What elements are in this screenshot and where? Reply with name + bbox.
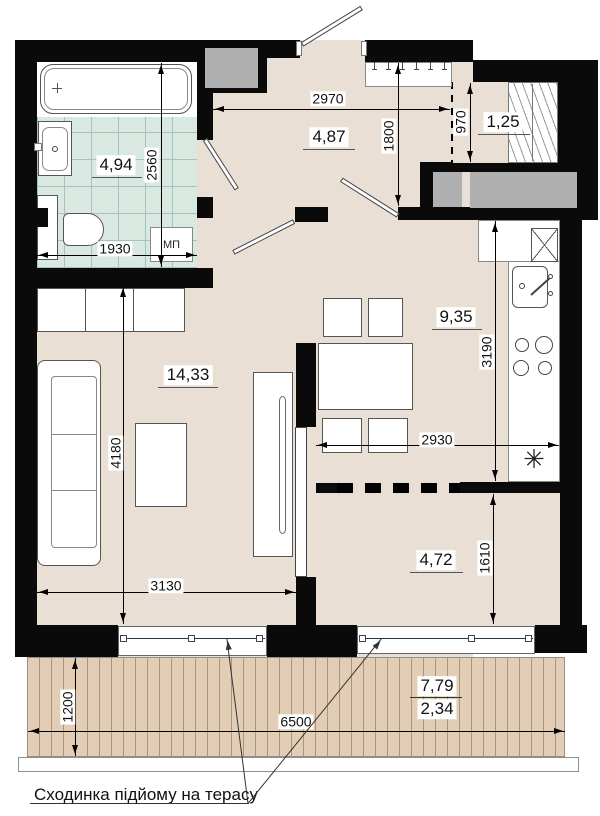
stove-burner (515, 338, 529, 352)
dim-closet-width-line (470, 83, 471, 162)
dining-chair (322, 418, 362, 453)
dim-kitchen-depth-line (495, 221, 496, 481)
wall-zone-right (460, 482, 560, 493)
wall-bottom-left (15, 625, 118, 657)
dim-hall-width-line (213, 109, 450, 110)
shaft-frame-right (258, 40, 267, 93)
dim-kitchen-depth: 3190 (479, 334, 494, 369)
dim-bathroom-depth-line (161, 63, 162, 267)
room-label-kitchen: 9,35 (436, 307, 475, 327)
vent-shaft-small (433, 172, 462, 207)
window-handle (359, 635, 366, 642)
shaft-frame-bottom (205, 88, 267, 93)
kitchen-faucet-knob (548, 274, 553, 279)
tv-stand (253, 372, 293, 557)
toilet-cistern-frame (37, 195, 58, 260)
tv-panel (279, 396, 286, 534)
wall-left (15, 40, 37, 657)
sofa-cushion-line (52, 490, 96, 491)
dim-terrace-width-line (28, 731, 565, 732)
wall-living-divider-upper (296, 343, 316, 427)
wall-bath-south (15, 268, 213, 288)
terrace-step (18, 757, 579, 772)
kitchen-faucet-knob (548, 291, 553, 296)
dining-chair (368, 418, 408, 453)
stove-burner (538, 361, 552, 375)
window-handle (188, 635, 195, 642)
wall-zone-stub-left (316, 483, 337, 493)
toilet-frame-notch (37, 208, 48, 227)
dining-table (318, 343, 413, 410)
kitchen-sink-drain (519, 283, 525, 289)
floor-plan: МП ✳ 2970 1800 970 2560 1930 4180 (0, 0, 600, 816)
washer-place-label: МП (163, 239, 180, 251)
stove-burner (535, 336, 553, 354)
dim-nook-depth: 1610 (477, 540, 492, 575)
dim-nook-depth-line (493, 494, 494, 624)
room-underline-bathroom (92, 177, 142, 178)
wall-living-divider-lower (296, 577, 316, 627)
dim-bathroom-depth: 2560 (144, 147, 159, 182)
dim-kitchen-width: 2930 (419, 432, 454, 447)
washbasin-drain (52, 146, 58, 152)
note-terrace-step: Сходинка підйому на терасу (34, 785, 258, 805)
sofa-seat (51, 376, 97, 548)
kitchen-sink (512, 266, 548, 308)
coat-hook (416, 62, 417, 70)
vent-shaft-large (470, 172, 577, 208)
room-underline-kitchen (432, 329, 482, 330)
window-handle (256, 635, 263, 642)
dim-living-depth: 4180 (108, 435, 123, 470)
bathtub-drain (57, 83, 58, 93)
dining-chair (368, 298, 403, 337)
room-label-living: 14,33 (164, 365, 213, 385)
wall-bottom-pier (267, 625, 357, 657)
wall-top-right (365, 40, 473, 62)
kitchen-vent-x (531, 228, 558, 262)
sliding-panel (295, 427, 307, 577)
window-handle (468, 635, 475, 642)
stove-burner (513, 360, 529, 376)
room-label-terrace-reduced: 2,34 (417, 699, 456, 719)
room-underline-nook (410, 572, 463, 573)
window-nook-glazing (359, 638, 533, 639)
wall-kitchen-east (560, 220, 582, 627)
room-underline-hallway (303, 149, 355, 150)
dim-closet-width: 970 (453, 108, 468, 135)
dim-terrace-depth: 1200 (60, 689, 75, 724)
coat-hook (374, 62, 375, 70)
cabinet-divider (85, 289, 86, 331)
wardrobe-cabinet (37, 288, 185, 332)
washbasin-tap (34, 143, 42, 151)
entrance-jamb-right (361, 41, 367, 56)
zone-dashed-boundary (337, 483, 460, 493)
window-handle (120, 635, 127, 642)
wall-bottom-right (535, 625, 587, 653)
room-fraction-line-terrace (410, 697, 462, 698)
dim-hall-depth: 1800 (381, 118, 396, 153)
coffee-table (135, 423, 187, 507)
room-label-terrace-area: 7,79 (417, 676, 456, 696)
coat-hook (444, 62, 445, 70)
note-underline (30, 803, 249, 804)
coat-hook (430, 62, 431, 70)
room-underline-living (158, 387, 218, 388)
vent-shaft-entrance (205, 48, 258, 88)
dim-hall-depth-line (398, 63, 399, 206)
coat-hook (388, 62, 389, 70)
bathtub-inner (44, 68, 188, 110)
room-underline-closet (478, 134, 530, 135)
wall-top-bathroom (15, 40, 213, 62)
wall-hall-stub (295, 207, 328, 222)
cabinet-divider (133, 289, 134, 331)
dining-chair (323, 298, 362, 337)
wardrobe-rail (532, 84, 533, 161)
wall-kitchen-north (398, 207, 580, 220)
coat-hook (402, 62, 403, 70)
window-handle (525, 635, 532, 642)
room-label-hallway: 4,87 (309, 127, 348, 147)
room-label-nook: 4,72 (416, 550, 455, 570)
boiler-icon: ✳ (523, 446, 545, 472)
dim-bathroom-width: 1930 (97, 241, 132, 256)
wall-closet-south (433, 162, 580, 172)
room-label-closet: 1,25 (483, 112, 522, 132)
coat-rack (365, 62, 452, 87)
sofa-cushion-line (52, 434, 96, 435)
wall-bath-east-stub (197, 197, 213, 218)
dim-hall-width: 2970 (310, 91, 345, 106)
dim-living-width: 3130 (148, 578, 183, 593)
room-label-bathroom: 4,94 (96, 155, 135, 175)
